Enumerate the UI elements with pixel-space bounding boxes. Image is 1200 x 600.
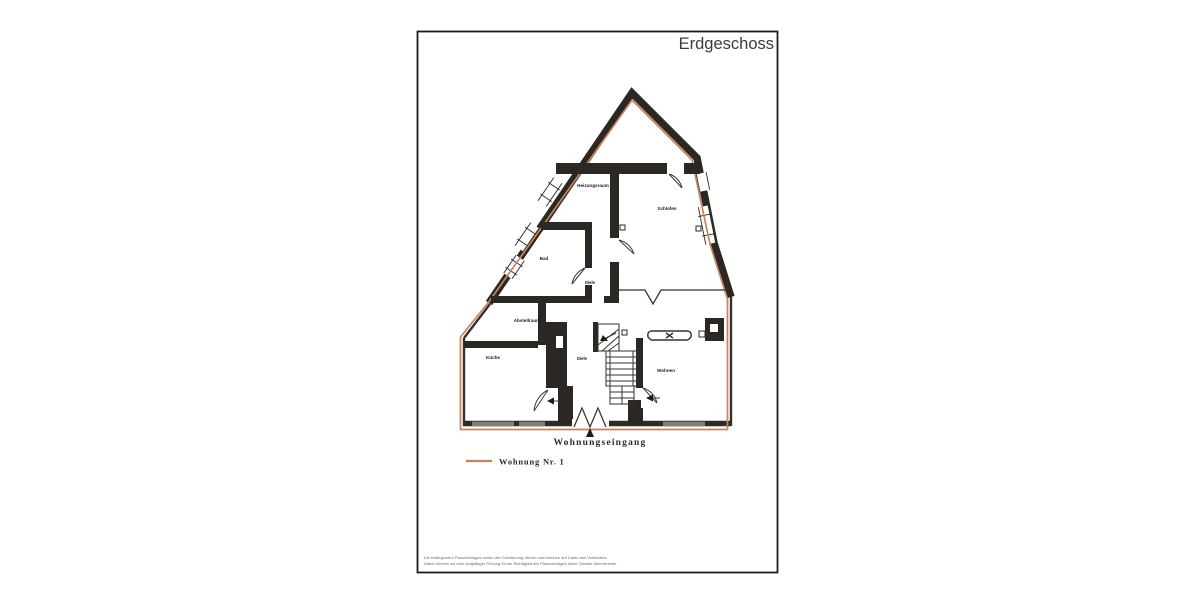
room-label-abstellraum: Abstellraum — [514, 318, 541, 323]
room-label-diele-lower: Diele — [577, 356, 588, 361]
fireplace-icon-inner — [710, 324, 718, 332]
wall — [538, 303, 546, 345]
wall — [464, 341, 538, 348]
window-sill-icon — [472, 422, 514, 426]
wall — [556, 163, 667, 174]
room-label-diele-upper: Diele — [585, 280, 596, 285]
room-label-bad: Bad — [540, 256, 549, 261]
chimney-flue — [556, 336, 563, 348]
scanned-document-canvas: Erdgeschoss — [0, 0, 1200, 600]
wall — [541, 222, 592, 230]
window-sill-icon — [663, 422, 705, 426]
floor-plan-svg: Erdgeschoss — [0, 0, 1200, 600]
wall — [558, 386, 573, 424]
room-label-kueche: Küche — [486, 355, 500, 360]
wall — [684, 163, 700, 174]
wall — [491, 296, 592, 303]
legend-label: Wohnung Nr. 1 — [499, 457, 565, 467]
chimney-block — [546, 322, 567, 388]
outlet-icon — [696, 226, 701, 231]
outlet-icon — [622, 330, 627, 335]
disclaimer-line-1: Die beiliegenden Planunterlagen sollen d… — [424, 555, 607, 560]
wall — [604, 296, 619, 303]
wall — [636, 408, 643, 424]
window-sill-icon — [519, 422, 545, 426]
room-label-schlafen: Schlafen — [657, 206, 676, 211]
page-border — [418, 32, 778, 573]
entrance-caption: Wohnungseingang — [554, 438, 647, 448]
outlet-icon — [699, 331, 705, 337]
outlet-icon — [620, 225, 625, 230]
wall — [593, 322, 598, 352]
room-label-heizungsraum: Heizungsraum — [577, 183, 609, 188]
wall — [585, 222, 592, 268]
page-title: Erdgeschoss — [679, 35, 774, 53]
room-label-wohnen: Wohnen — [657, 368, 675, 373]
wall — [610, 174, 619, 238]
disclaimer-line-2: Daher können wir trotz sorgfältiger Prüf… — [424, 561, 616, 566]
